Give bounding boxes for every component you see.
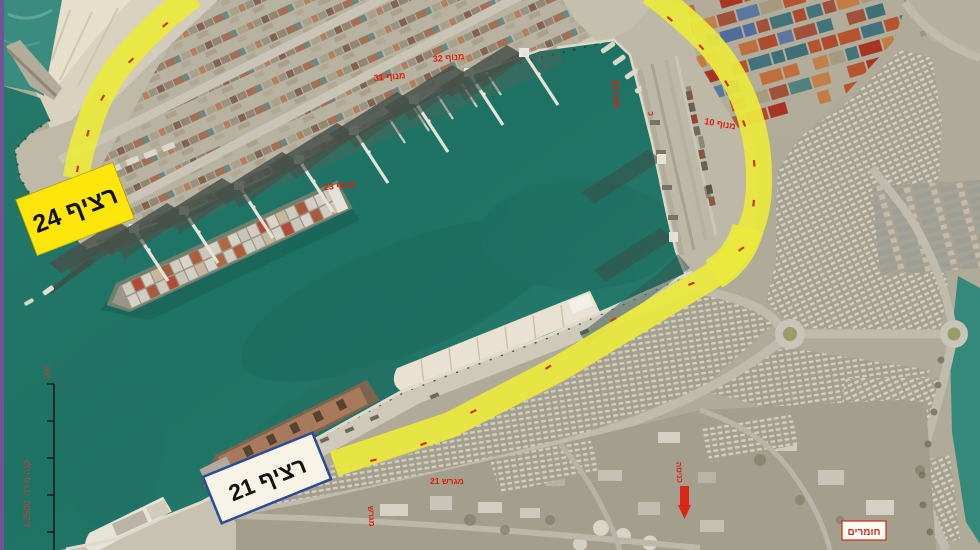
svg-text:כניסה: כניסה	[674, 462, 684, 484]
svg-text:מזח 24: מזח 24	[610, 79, 622, 108]
svg-text:מגרש: מגרש	[366, 506, 376, 527]
svg-text:500: 500	[43, 365, 52, 379]
svg-text:קנה מידה: קנה מידה	[22, 460, 32, 496]
svg-text:חומרים: חומרים	[847, 527, 880, 538]
svg-text:1:2500: 1:2500	[22, 500, 32, 528]
svg-text:מגרש 21: מגרש 21	[430, 476, 464, 486]
